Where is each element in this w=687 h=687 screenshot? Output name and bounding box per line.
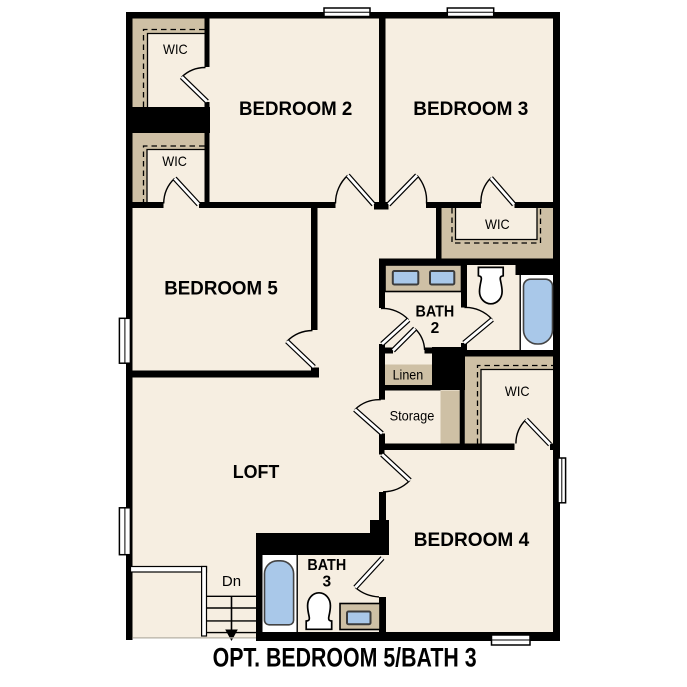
- svg-text:WIC: WIC: [505, 383, 530, 399]
- svg-text:Dn: Dn: [222, 573, 241, 590]
- svg-text:OPT. BEDROOM 5/BATH 3: OPT. BEDROOM 5/BATH 3: [213, 643, 477, 673]
- svg-text:WIC: WIC: [162, 153, 187, 169]
- svg-text:Storage: Storage: [390, 407, 435, 423]
- svg-text:WIC: WIC: [163, 41, 188, 57]
- svg-text:Linen: Linen: [393, 367, 424, 382]
- svg-text:BEDROOM 4: BEDROOM 4: [414, 530, 530, 551]
- svg-text:BEDROOM 2: BEDROOM 2: [239, 99, 352, 120]
- svg-text:BEDROOM 3: BEDROOM 3: [413, 99, 528, 120]
- svg-text:3: 3: [322, 573, 331, 590]
- svg-text:WIC: WIC: [485, 216, 510, 232]
- svg-text:BEDROOM 5: BEDROOM 5: [164, 279, 278, 300]
- svg-text:LOFT: LOFT: [233, 462, 280, 482]
- svg-text:BATH: BATH: [307, 557, 346, 574]
- svg-text:BATH: BATH: [416, 304, 455, 321]
- svg-text:2: 2: [431, 320, 440, 337]
